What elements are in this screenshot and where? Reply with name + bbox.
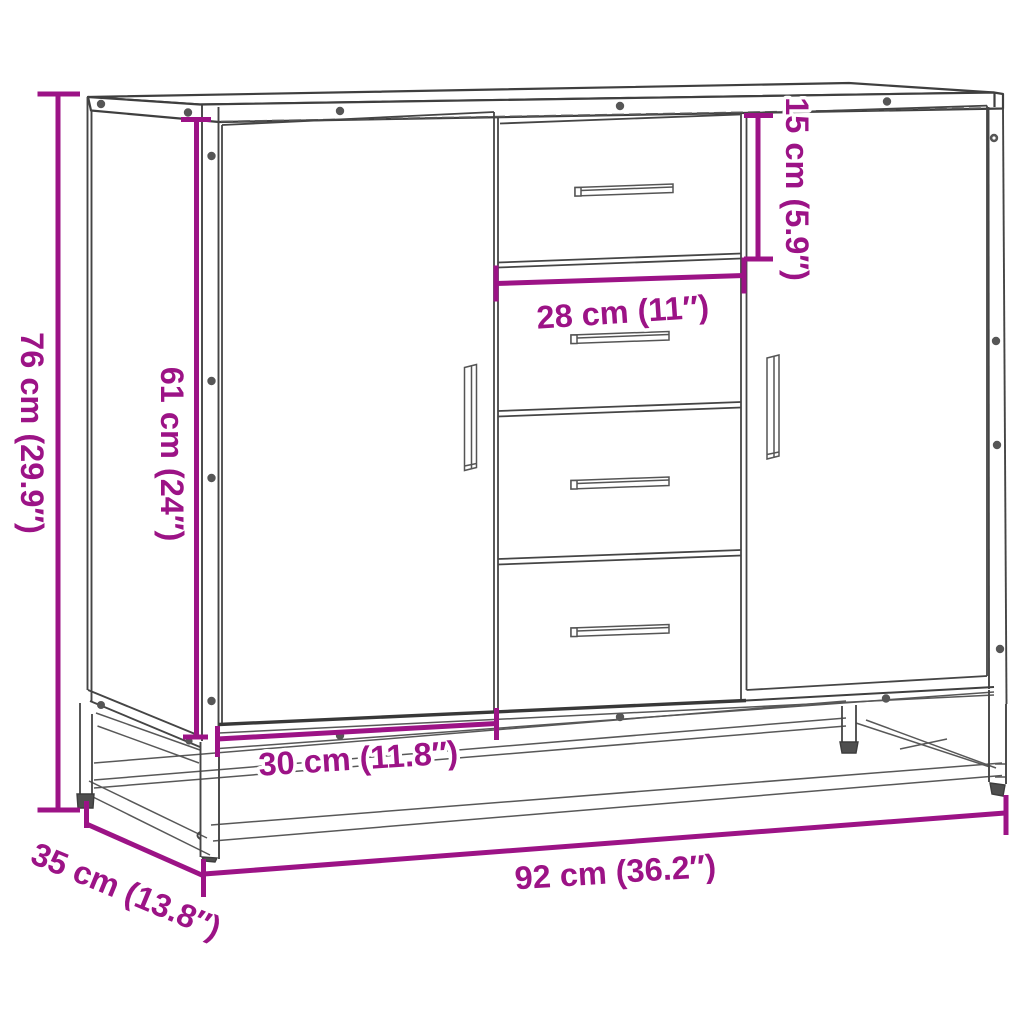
- svg-text:76 cm (29.9″): 76 cm (29.9″): [14, 332, 50, 534]
- svg-text:61 cm (24″): 61 cm (24″): [154, 367, 190, 542]
- svg-text:15 cm (5.9″): 15 cm (5.9″): [779, 97, 815, 281]
